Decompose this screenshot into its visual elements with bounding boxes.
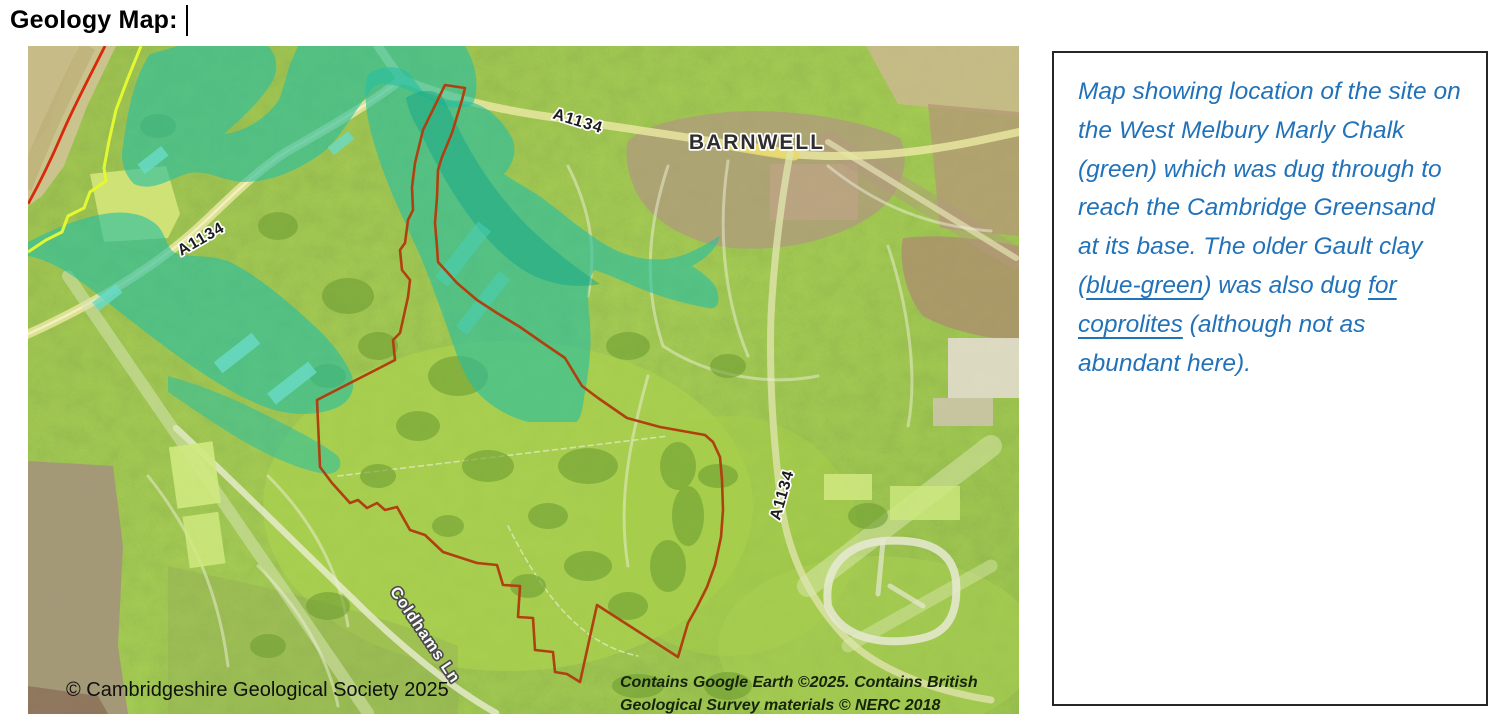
map-attribution-line2: Geological Survey materials © NERC 2018 — [620, 697, 940, 714]
caption-box[interactable]: Map showing location of the site on the … — [1052, 51, 1488, 706]
page-title-row: Geology Map: — [10, 5, 188, 36]
caption-text: Map showing location of the site on the … — [1078, 73, 1462, 383]
caption-text-segment: Map showing location of the site on the … — [1078, 78, 1461, 299]
town-label-barnwell: BARNWELL — [689, 131, 825, 154]
geology-map[interactable]: A1134 A1134 A1134 BARNWELL Coldhams Ln ©… — [28, 46, 1019, 714]
page-title[interactable]: Geology Map: — [10, 6, 178, 35]
geology-map-canvas: A1134 A1134 A1134 BARNWELL Coldhams Ln ©… — [28, 46, 1019, 714]
caption-text-segment: ) was also dug — [1203, 272, 1368, 299]
document-page: Geology Map: — [0, 0, 1504, 726]
caption-text-segment-underlined: blue-green — [1086, 272, 1203, 299]
map-attribution-line1: Contains Google Earth ©2025. Contains Br… — [620, 674, 978, 691]
text-cursor — [186, 5, 188, 36]
map-copyright: © Cambridgeshire Geological Society 2025 — [66, 679, 449, 701]
